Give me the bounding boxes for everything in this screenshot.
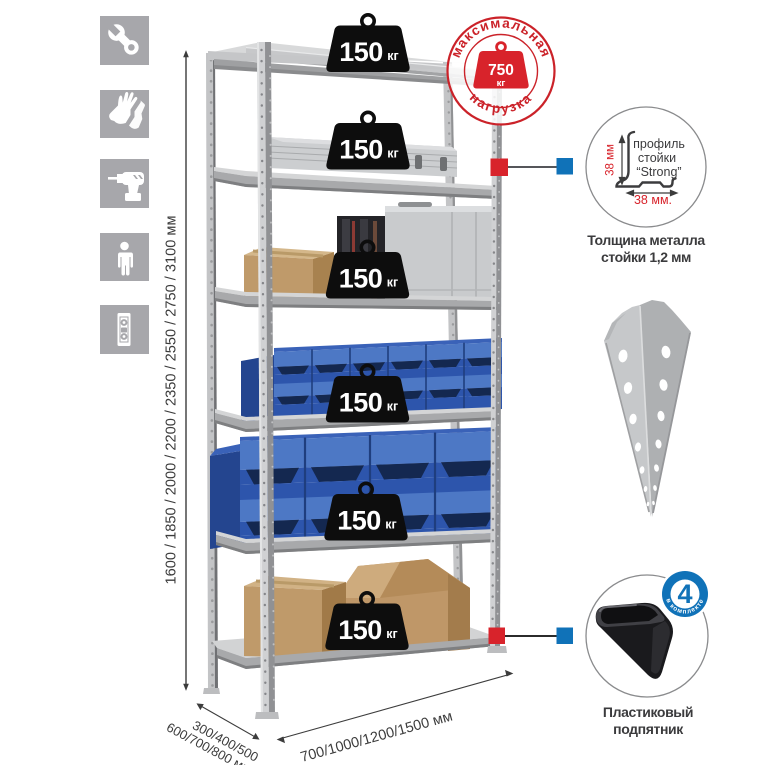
svg-text:750: 750	[488, 62, 514, 79]
svg-text:профиль: профиль	[633, 137, 685, 151]
svg-text:Толщина металла: Толщина металла	[587, 232, 705, 248]
svg-text:кг: кг	[497, 78, 506, 89]
svg-text:стойки 1,2 мм: стойки 1,2 мм	[601, 249, 691, 265]
svg-text:1600 / 1850 / 2000 / 2200 / 23: 1600 / 1850 / 2000 / 2200 / 2350 / 2550 …	[164, 216, 180, 585]
svg-text:4: 4	[677, 579, 692, 609]
svg-text:“Strong”: “Strong”	[636, 165, 681, 179]
svg-text:38 мм.: 38 мм.	[634, 193, 672, 207]
svg-text:Пластиковый: Пластиковый	[603, 704, 693, 720]
svg-text:38 мм: 38 мм	[605, 144, 617, 176]
svg-text:стойки: стойки	[638, 151, 676, 165]
svg-text:подпятник: подпятник	[613, 721, 684, 737]
